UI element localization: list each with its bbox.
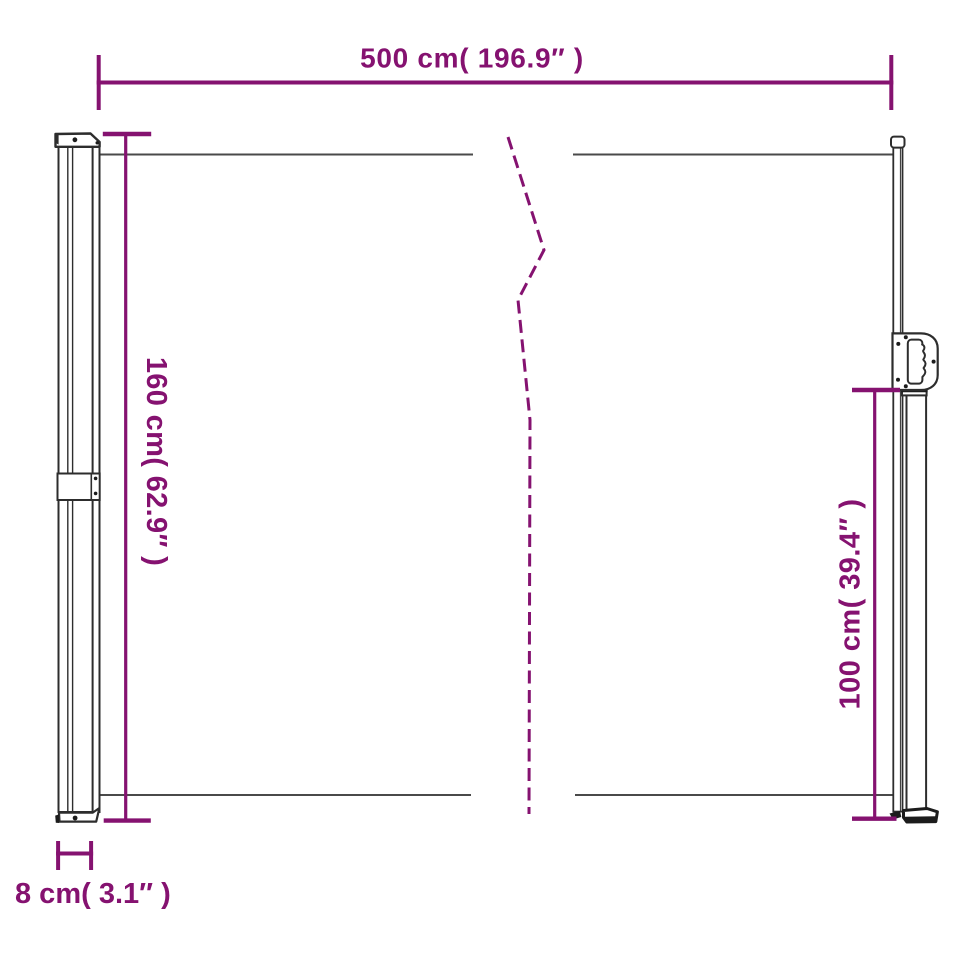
svg-text:160 cm( 62.9″ ): 160 cm( 62.9″ ) bbox=[140, 357, 172, 566]
svg-text:500 cm( 196.9″ ): 500 cm( 196.9″ ) bbox=[360, 43, 584, 74]
svg-text:100 cm( 39.4″ ): 100 cm( 39.4″ ) bbox=[835, 499, 867, 710]
svg-text:8 cm( 3.1″ ): 8 cm( 3.1″ ) bbox=[15, 878, 171, 910]
